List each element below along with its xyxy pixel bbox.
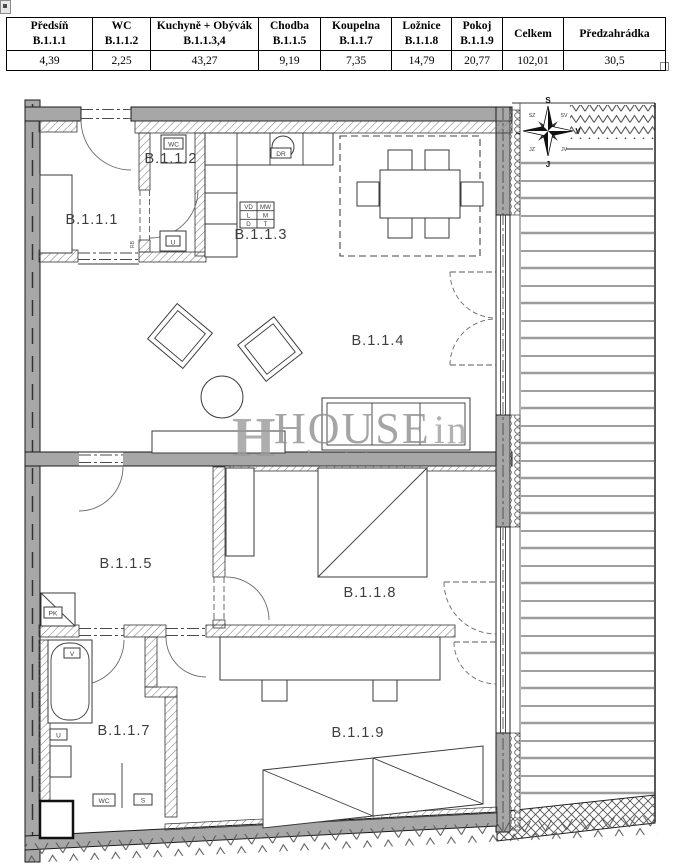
french-door-living-arc2 [450, 319, 496, 365]
bath-sink-label: U [56, 733, 61, 740]
hall-bottom-wall-left [39, 625, 79, 637]
french-door-living-arc1 [450, 272, 496, 318]
dining-chair [388, 218, 412, 238]
dining-set [340, 136, 483, 256]
shaft-label: PK [49, 611, 58, 618]
hall-bottom-wall-mid [124, 625, 166, 637]
legend-m: M [263, 213, 268, 220]
insulation-strip-bottom [510, 733, 520, 830]
floor-plan: S V J Z SZ SV JZ JV [0, 0, 677, 868]
wc-bottom-wall [139, 252, 206, 262]
hatch-top-left-stub [39, 121, 77, 132]
compass-ne-label: SV [561, 113, 568, 119]
legend-mw: MW [260, 204, 271, 211]
bedroom-door-arc [226, 577, 269, 620]
dining-chair [388, 150, 412, 170]
legend-vd: VD [244, 204, 253, 211]
insulation-strip-mid [510, 415, 520, 527]
dining-chair [425, 218, 449, 238]
dining-chair [425, 150, 449, 170]
room-label-b112: B.1.1.2 [145, 151, 198, 167]
room-label-b118: B.1.1.8 [344, 585, 397, 601]
compass-north-label: S [545, 96, 551, 105]
dining-chair [357, 182, 379, 206]
wc-sink-label: U [171, 240, 176, 247]
armchair [148, 304, 213, 369]
desk-chair [373, 680, 397, 701]
wc-left-wall-stub [139, 240, 150, 252]
kitchen-appliance-legend: VD MW L M D T [240, 202, 274, 228]
kitchen-hob-label: DR [276, 151, 286, 158]
watermark-tagline: real estate [274, 447, 383, 468]
desk [220, 637, 440, 680]
bath-wc-label: WC [99, 798, 110, 805]
hall-door-arc [79, 467, 123, 511]
dining-table [380, 170, 460, 218]
garden-decking [521, 152, 654, 800]
armchair-outer [148, 304, 213, 369]
top-wall-left [25, 107, 81, 121]
room9-door-arc [166, 637, 206, 677]
dining-chair [461, 182, 483, 206]
armchair [238, 317, 303, 382]
compass-nw-label: SZ [529, 113, 536, 119]
bathroom-fixtures: V U WC S [40, 640, 152, 838]
hatch-top-band [135, 121, 512, 133]
watermark-suffix-text: in [434, 407, 469, 452]
watermark-logo-mark: H [232, 407, 276, 469]
hall-bedroom-wall [213, 467, 225, 577]
kitchen-counter-side [205, 165, 237, 257]
bath-right-wall-step [145, 687, 177, 697]
bath-s-label: S [141, 798, 146, 805]
washing-machine [50, 746, 71, 777]
legend-l: L [247, 213, 251, 220]
rb-label: RB [130, 240, 136, 248]
garden-shrub-band [570, 105, 655, 139]
compass-se-label: JV [561, 147, 568, 153]
compass-sw-label: JZ [529, 147, 535, 153]
french-door-room9-arc [454, 642, 496, 684]
room-label-b114: B.1.1.4 [352, 333, 405, 349]
room-label-b119: B.1.1.9 [332, 725, 385, 741]
bath-right-wall-lower [165, 697, 177, 817]
hall-shaft: PK [41, 593, 75, 626]
bath-right-wall-upper [145, 637, 157, 687]
compass-east-label: V [575, 127, 581, 136]
bath-shaft [40, 801, 73, 838]
wardrobe [226, 468, 254, 556]
room-label-b111: B.1.1.1 [66, 212, 119, 228]
bedroom-room-divider-wall [206, 625, 455, 637]
kitchen-counter-top [205, 133, 333, 165]
entrance-door-arc [81, 120, 131, 170]
room-label-b117: B.1.1.7 [98, 723, 151, 739]
compass-south-label: J [546, 160, 550, 169]
bedroom-furniture [226, 468, 427, 577]
top-wall-right [131, 107, 512, 121]
watermark-brand: HOUSEin [274, 404, 469, 453]
bathtub-label: V [70, 651, 75, 658]
toilet-label: WC [168, 142, 179, 149]
hall-door-gap [79, 453, 123, 466]
room-label-b113: B.1.1.3 [235, 227, 288, 243]
front-garden [497, 103, 655, 841]
room-label-b115: B.1.1.5 [100, 556, 153, 572]
desk-chair [262, 680, 287, 701]
watermark-brand-text: HOUSE [274, 404, 431, 453]
floorplan-page: { "area_table": { "columns": [ {"name": … [0, 0, 677, 868]
